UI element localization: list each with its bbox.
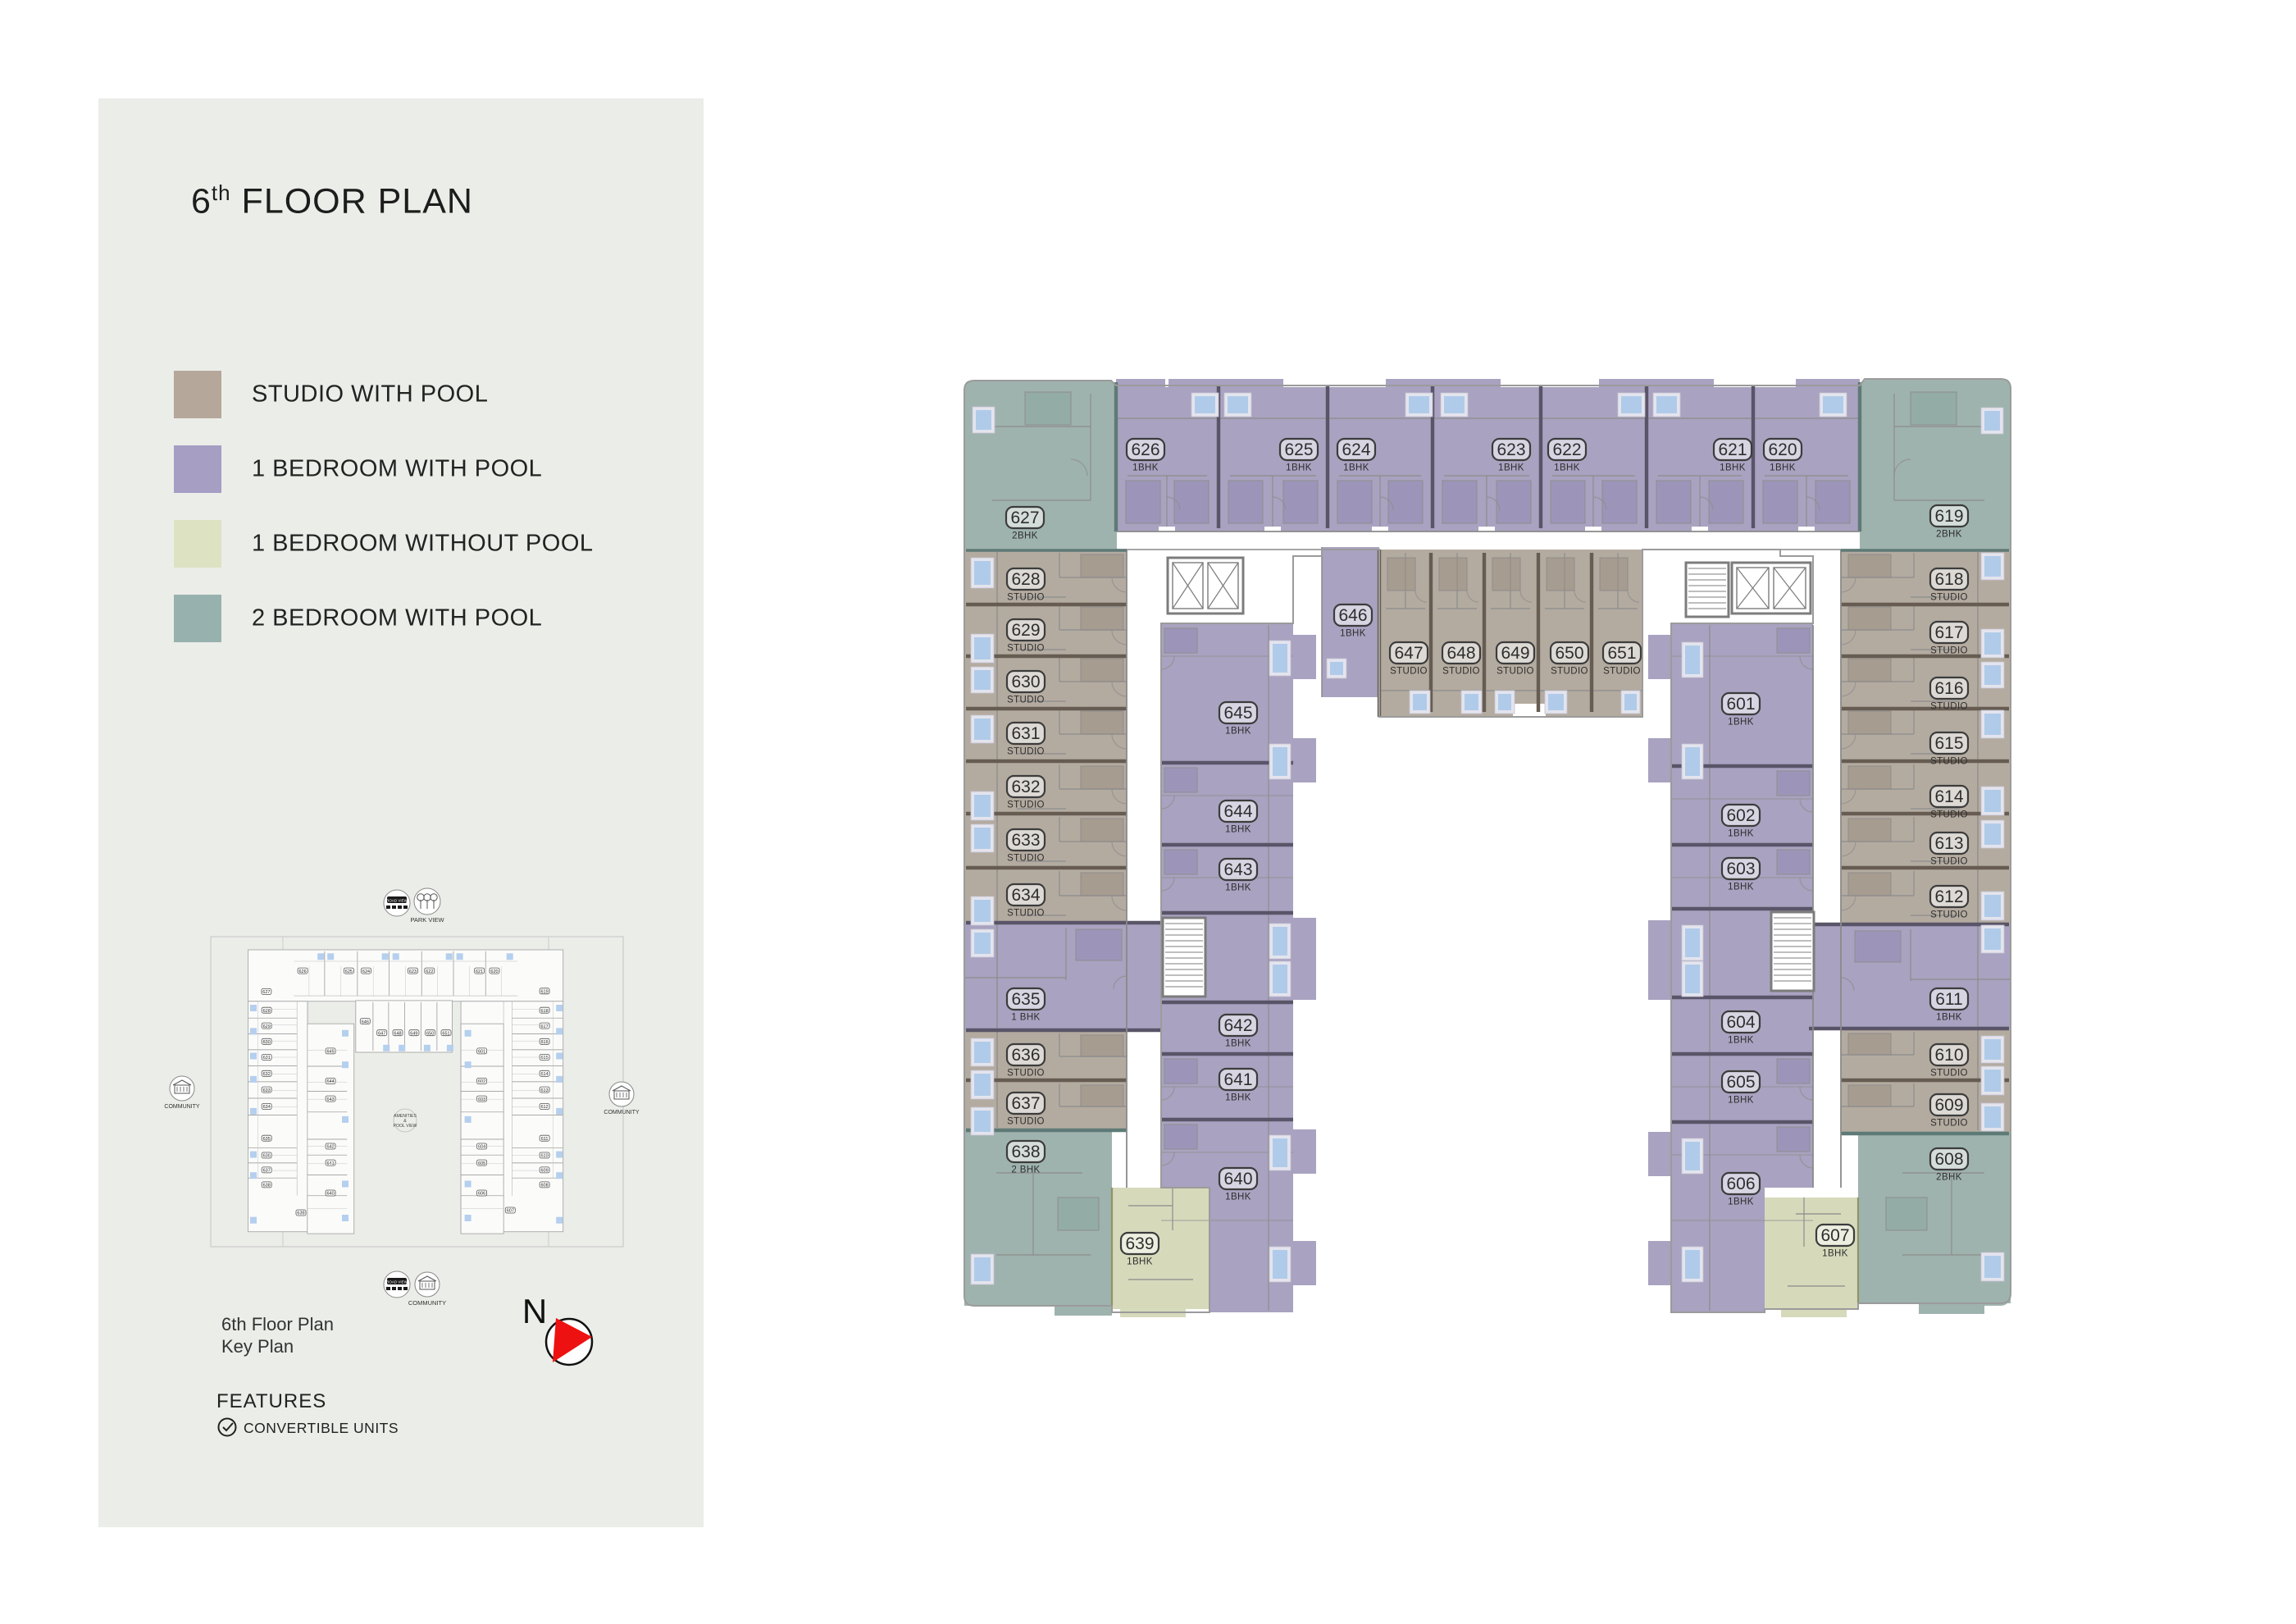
- svg-text:612: 612: [1934, 887, 1963, 906]
- svg-text:634: 634: [263, 1105, 271, 1110]
- svg-text:1BHK: 1BHK: [1286, 463, 1312, 473]
- svg-text:639: 639: [297, 1211, 304, 1216]
- svg-text:642: 642: [1223, 1016, 1252, 1035]
- svg-text:618: 618: [541, 1009, 549, 1014]
- svg-text:STUDIO: STUDIO: [1551, 667, 1588, 677]
- svg-text:627: 627: [1010, 509, 1039, 527]
- svg-text:2BHK: 2BHK: [1936, 1173, 1962, 1183]
- svg-text:633: 633: [1011, 831, 1040, 850]
- svg-text:605: 605: [1726, 1073, 1755, 1092]
- svg-text:629: 629: [1011, 621, 1040, 640]
- svg-text:640: 640: [327, 1192, 335, 1197]
- svg-text:1BHK: 1BHK: [1728, 1036, 1754, 1046]
- svg-text:1BHK: 1BHK: [1728, 1096, 1754, 1106]
- svg-text:2BHK: 2BHK: [1012, 531, 1038, 541]
- svg-text:STUDIO: STUDIO: [1007, 854, 1045, 864]
- svg-text:644: 644: [1223, 802, 1252, 821]
- svg-text:602: 602: [1726, 806, 1755, 825]
- svg-text:627: 627: [262, 990, 270, 995]
- svg-text:618: 618: [1934, 570, 1963, 589]
- svg-text:636: 636: [263, 1154, 271, 1159]
- svg-text:STUDIO: STUDIO: [1930, 646, 1968, 656]
- svg-text:604: 604: [1726, 1013, 1755, 1032]
- svg-text:1BHK: 1BHK: [1225, 1193, 1251, 1202]
- svg-text:642: 642: [327, 1145, 335, 1150]
- svg-text:648: 648: [1446, 644, 1475, 663]
- svg-text:648: 648: [394, 1031, 401, 1036]
- svg-text:2 BHK: 2 BHK: [1011, 1166, 1040, 1175]
- svg-text:STUDIO: STUDIO: [1007, 801, 1045, 810]
- svg-text:647: 647: [1394, 644, 1423, 663]
- svg-text:625: 625: [1284, 440, 1313, 459]
- svg-text:628: 628: [263, 1009, 271, 1014]
- svg-text:651: 651: [442, 1031, 449, 1036]
- svg-text:616: 616: [1934, 679, 1963, 698]
- svg-text:1BHK: 1BHK: [1936, 1013, 1962, 1023]
- svg-text:610: 610: [541, 1154, 549, 1159]
- svg-text:STUDIO: STUDIO: [1007, 593, 1045, 603]
- svg-text:Key Plan: Key Plan: [221, 1336, 294, 1357]
- svg-text:620: 620: [1768, 440, 1797, 459]
- svg-text:POOL VIEW: POOL VIEW: [394, 1124, 417, 1129]
- svg-text:STUDIO: STUDIO: [1007, 696, 1045, 705]
- svg-text:631: 631: [263, 1056, 271, 1061]
- svg-text:626: 626: [1131, 440, 1159, 459]
- svg-text:2BHK: 2BHK: [1936, 530, 1962, 540]
- svg-text:633: 633: [263, 1088, 271, 1093]
- svg-text:646: 646: [362, 1020, 369, 1024]
- svg-text:STUDIO: STUDIO: [1930, 910, 1968, 920]
- svg-text:622: 622: [426, 969, 433, 974]
- svg-text:644: 644: [327, 1079, 335, 1084]
- svg-text:639: 639: [1125, 1234, 1154, 1253]
- svg-text:STUDIO: STUDIO: [1930, 757, 1968, 767]
- svg-text:N: N: [522, 1292, 547, 1330]
- svg-text:ROAD VIEW: ROAD VIEW: [386, 1280, 408, 1284]
- svg-text:607: 607: [507, 1209, 514, 1214]
- svg-text:COMMUNITY: COMMUNITY: [408, 1299, 446, 1307]
- svg-text:613: 613: [1934, 834, 1963, 853]
- svg-text:1BHK: 1BHK: [1728, 883, 1754, 892]
- svg-text:STUDIO: STUDIO: [1007, 909, 1045, 919]
- svg-text:608: 608: [1934, 1150, 1963, 1169]
- svg-text:637: 637: [1011, 1094, 1040, 1113]
- svg-text:STUDIO: STUDIO: [1930, 1119, 1968, 1129]
- svg-text:COMMUNITY: COMMUNITY: [604, 1110, 639, 1115]
- svg-text:STUDIO: STUDIO: [1007, 1069, 1045, 1079]
- svg-text:1BHK: 1BHK: [1822, 1249, 1848, 1259]
- svg-text:606: 606: [1726, 1175, 1755, 1193]
- svg-text:616: 616: [541, 1040, 549, 1045]
- svg-text:615: 615: [541, 1056, 549, 1061]
- svg-text:636: 636: [1011, 1046, 1040, 1065]
- svg-text:PARK VIEW: PARK VIEW: [410, 916, 444, 924]
- svg-text:1BHK: 1BHK: [1225, 1093, 1251, 1103]
- svg-text:609: 609: [1934, 1096, 1963, 1115]
- svg-text:STUDIO: STUDIO: [1930, 810, 1968, 820]
- svg-text:628: 628: [1011, 570, 1040, 589]
- svg-text:632: 632: [263, 1072, 271, 1077]
- svg-text:1BHK: 1BHK: [1340, 629, 1366, 639]
- svg-text:620: 620: [490, 969, 498, 974]
- svg-text:1BHK: 1BHK: [1225, 1039, 1251, 1049]
- svg-text:1BHK: 1BHK: [1127, 1257, 1153, 1267]
- svg-text:1BHK: 1BHK: [1225, 727, 1251, 737]
- svg-text:604: 604: [478, 1145, 485, 1150]
- svg-text:COMMUNITY: COMMUNITY: [164, 1104, 199, 1110]
- svg-text:617: 617: [1934, 623, 1963, 642]
- svg-text:1BHK: 1BHK: [1728, 718, 1754, 728]
- svg-text:643: 643: [327, 1097, 335, 1102]
- svg-text:603: 603: [478, 1097, 485, 1102]
- svg-text:610: 610: [1934, 1046, 1963, 1065]
- svg-text:602: 602: [478, 1079, 485, 1084]
- svg-text:STUDIO: STUDIO: [1007, 1117, 1045, 1127]
- svg-text:STUDIO: STUDIO: [1603, 667, 1641, 677]
- svg-text:609: 609: [541, 1169, 549, 1174]
- svg-text:632: 632: [1011, 778, 1040, 796]
- svg-text:621: 621: [1718, 440, 1747, 459]
- svg-text:626: 626: [299, 969, 307, 974]
- svg-text:1BHK: 1BHK: [1728, 829, 1754, 839]
- svg-text:630: 630: [263, 1040, 271, 1045]
- svg-text:615: 615: [1934, 734, 1963, 753]
- svg-text:608: 608: [541, 1184, 549, 1188]
- svg-text:621: 621: [476, 969, 483, 974]
- svg-text:638: 638: [1011, 1143, 1040, 1161]
- svg-text:637: 637: [263, 1169, 271, 1174]
- svg-text:STUDIO: STUDIO: [1930, 702, 1968, 712]
- svg-text:646: 646: [1338, 606, 1367, 625]
- svg-text:622: 622: [1552, 440, 1581, 459]
- svg-text:STUDIO: STUDIO: [1930, 857, 1968, 867]
- svg-text:1BHK: 1BHK: [1225, 825, 1251, 835]
- svg-text:1BHK: 1BHK: [1225, 883, 1251, 893]
- svg-text:643: 643: [1223, 860, 1252, 879]
- svg-text:649: 649: [1501, 644, 1529, 663]
- svg-text:635: 635: [263, 1137, 271, 1142]
- svg-text:1BHK: 1BHK: [1720, 463, 1746, 473]
- svg-text:613: 613: [541, 1088, 549, 1093]
- svg-text:6th Floor Plan: 6th Floor Plan: [221, 1314, 334, 1334]
- svg-text:631: 631: [1011, 724, 1040, 743]
- svg-text:1BHK: 1BHK: [1343, 463, 1369, 473]
- svg-text:STUDIO: STUDIO: [1007, 644, 1045, 654]
- svg-text:624: 624: [362, 969, 370, 974]
- svg-text:619: 619: [1934, 507, 1963, 526]
- svg-text:STUDIO: STUDIO: [1930, 1069, 1968, 1079]
- svg-text:1BHK: 1BHK: [1132, 463, 1159, 473]
- svg-text:619: 619: [541, 990, 549, 995]
- svg-text:641: 641: [1223, 1070, 1252, 1089]
- svg-text:647: 647: [378, 1031, 385, 1036]
- svg-text:1BHK: 1BHK: [1770, 463, 1796, 473]
- svg-text:1BHK: 1BHK: [1554, 463, 1580, 473]
- svg-text:STUDIO: STUDIO: [1496, 667, 1534, 677]
- svg-text:614: 614: [1934, 787, 1963, 806]
- svg-text:1 BHK: 1 BHK: [1011, 1013, 1040, 1023]
- svg-text:STUDIO: STUDIO: [1007, 747, 1045, 757]
- svg-text:STUDIO: STUDIO: [1930, 593, 1968, 603]
- svg-text:640: 640: [1223, 1170, 1252, 1188]
- svg-text:1BHK: 1BHK: [1498, 463, 1524, 473]
- svg-text:650: 650: [426, 1031, 434, 1036]
- svg-text:611: 611: [1935, 990, 1962, 1009]
- svg-text:CONVERTIBLE UNITS: CONVERTIBLE UNITS: [244, 1420, 399, 1436]
- svg-text:649: 649: [410, 1031, 417, 1036]
- svg-text:STUDIO: STUDIO: [1442, 667, 1480, 677]
- svg-text:612: 612: [541, 1105, 549, 1110]
- svg-text:607: 607: [1820, 1226, 1849, 1245]
- svg-text:625: 625: [345, 969, 353, 974]
- svg-text:634: 634: [1011, 886, 1040, 905]
- svg-text:611: 611: [541, 1137, 549, 1142]
- svg-text:1BHK: 1BHK: [1728, 1197, 1754, 1207]
- svg-text:630: 630: [1011, 673, 1040, 691]
- svg-text:601: 601: [1726, 695, 1755, 714]
- svg-text:603: 603: [1726, 860, 1755, 878]
- svg-text:638: 638: [263, 1184, 271, 1188]
- svg-text:614: 614: [541, 1072, 549, 1077]
- svg-text:623: 623: [1496, 440, 1525, 459]
- svg-text:623: 623: [409, 969, 417, 974]
- svg-text:ROAD VIEW: ROAD VIEW: [386, 899, 408, 903]
- svg-text:651: 651: [1607, 644, 1636, 663]
- svg-text:STUDIO: STUDIO: [1390, 667, 1428, 677]
- svg-text:635: 635: [1011, 990, 1040, 1009]
- svg-text:650: 650: [1555, 644, 1583, 663]
- svg-text:FEATURES: FEATURES: [216, 1390, 326, 1412]
- svg-text:606: 606: [478, 1192, 485, 1197]
- svg-text:645: 645: [1223, 704, 1252, 723]
- svg-text:624: 624: [1342, 440, 1370, 459]
